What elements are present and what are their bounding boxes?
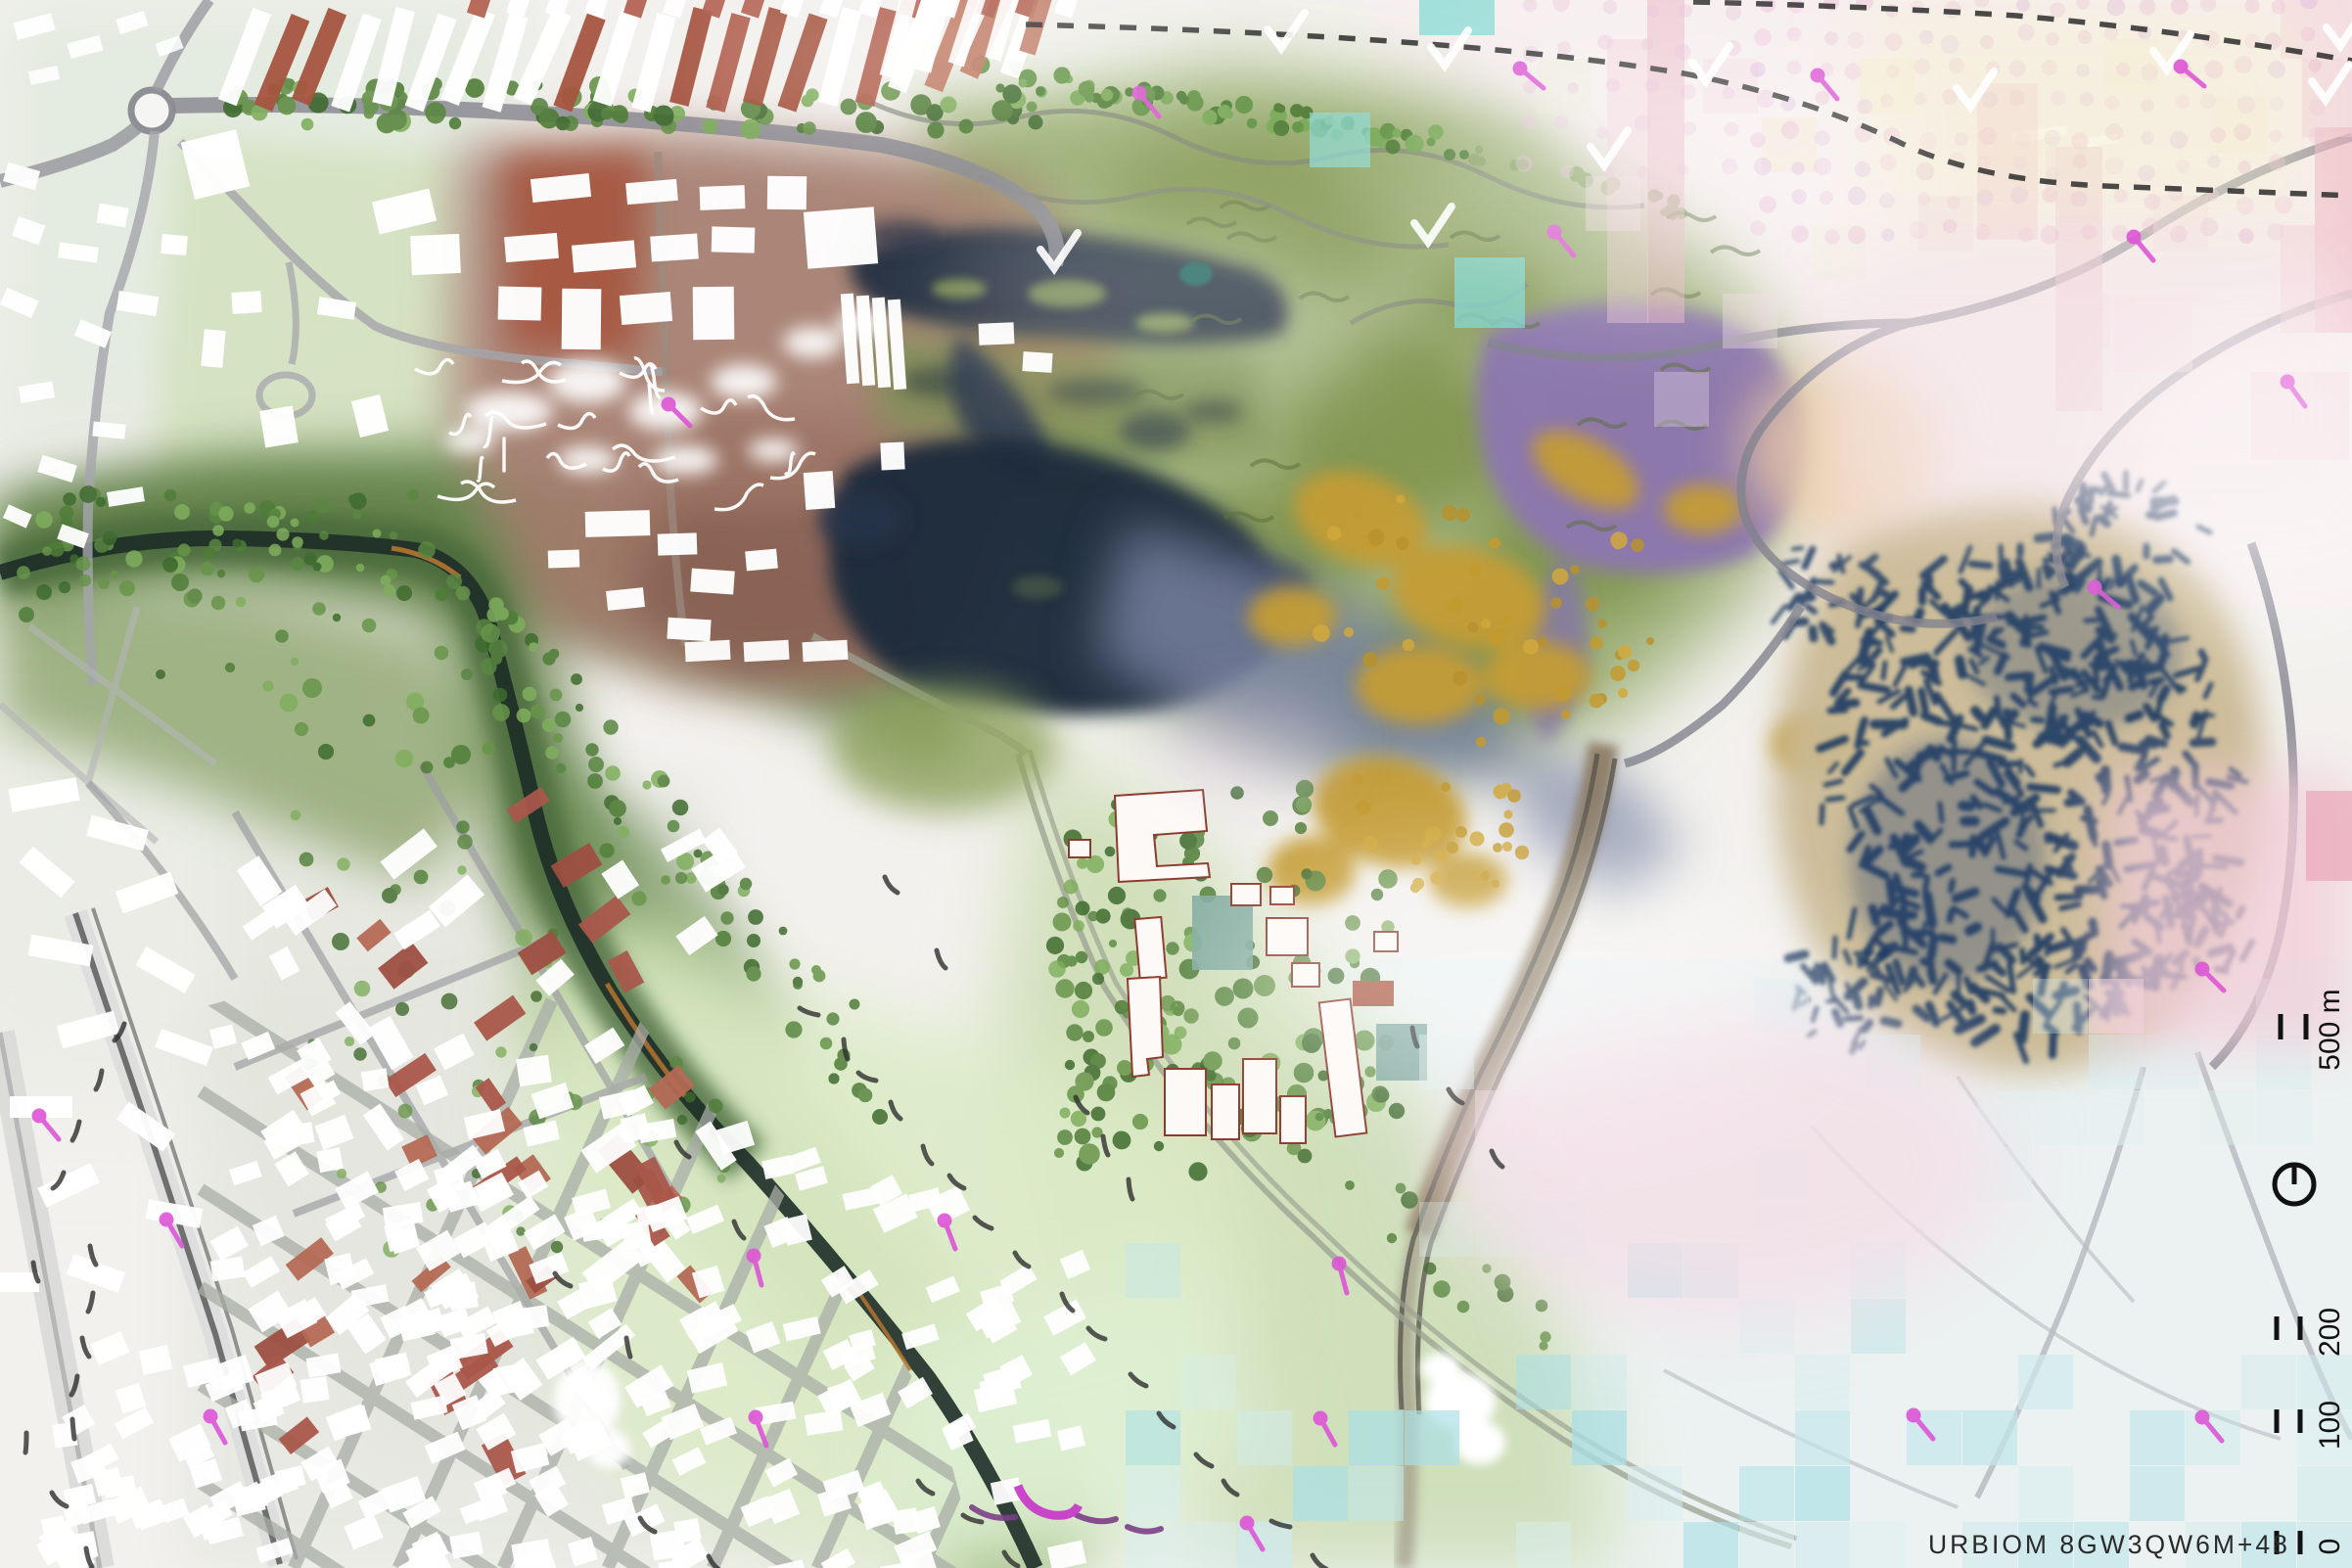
svg-text:URBIOM 8GW3QW6M+48: URBIOM 8GW3QW6M+48 <box>1928 1530 2290 1559</box>
svg-text:200: 200 <box>2314 1308 2346 1357</box>
svg-text:100: 100 <box>2314 1401 2346 1450</box>
svg-text:0: 0 <box>2314 1539 2346 1555</box>
svg-text:500 m: 500 m <box>2314 989 2346 1070</box>
